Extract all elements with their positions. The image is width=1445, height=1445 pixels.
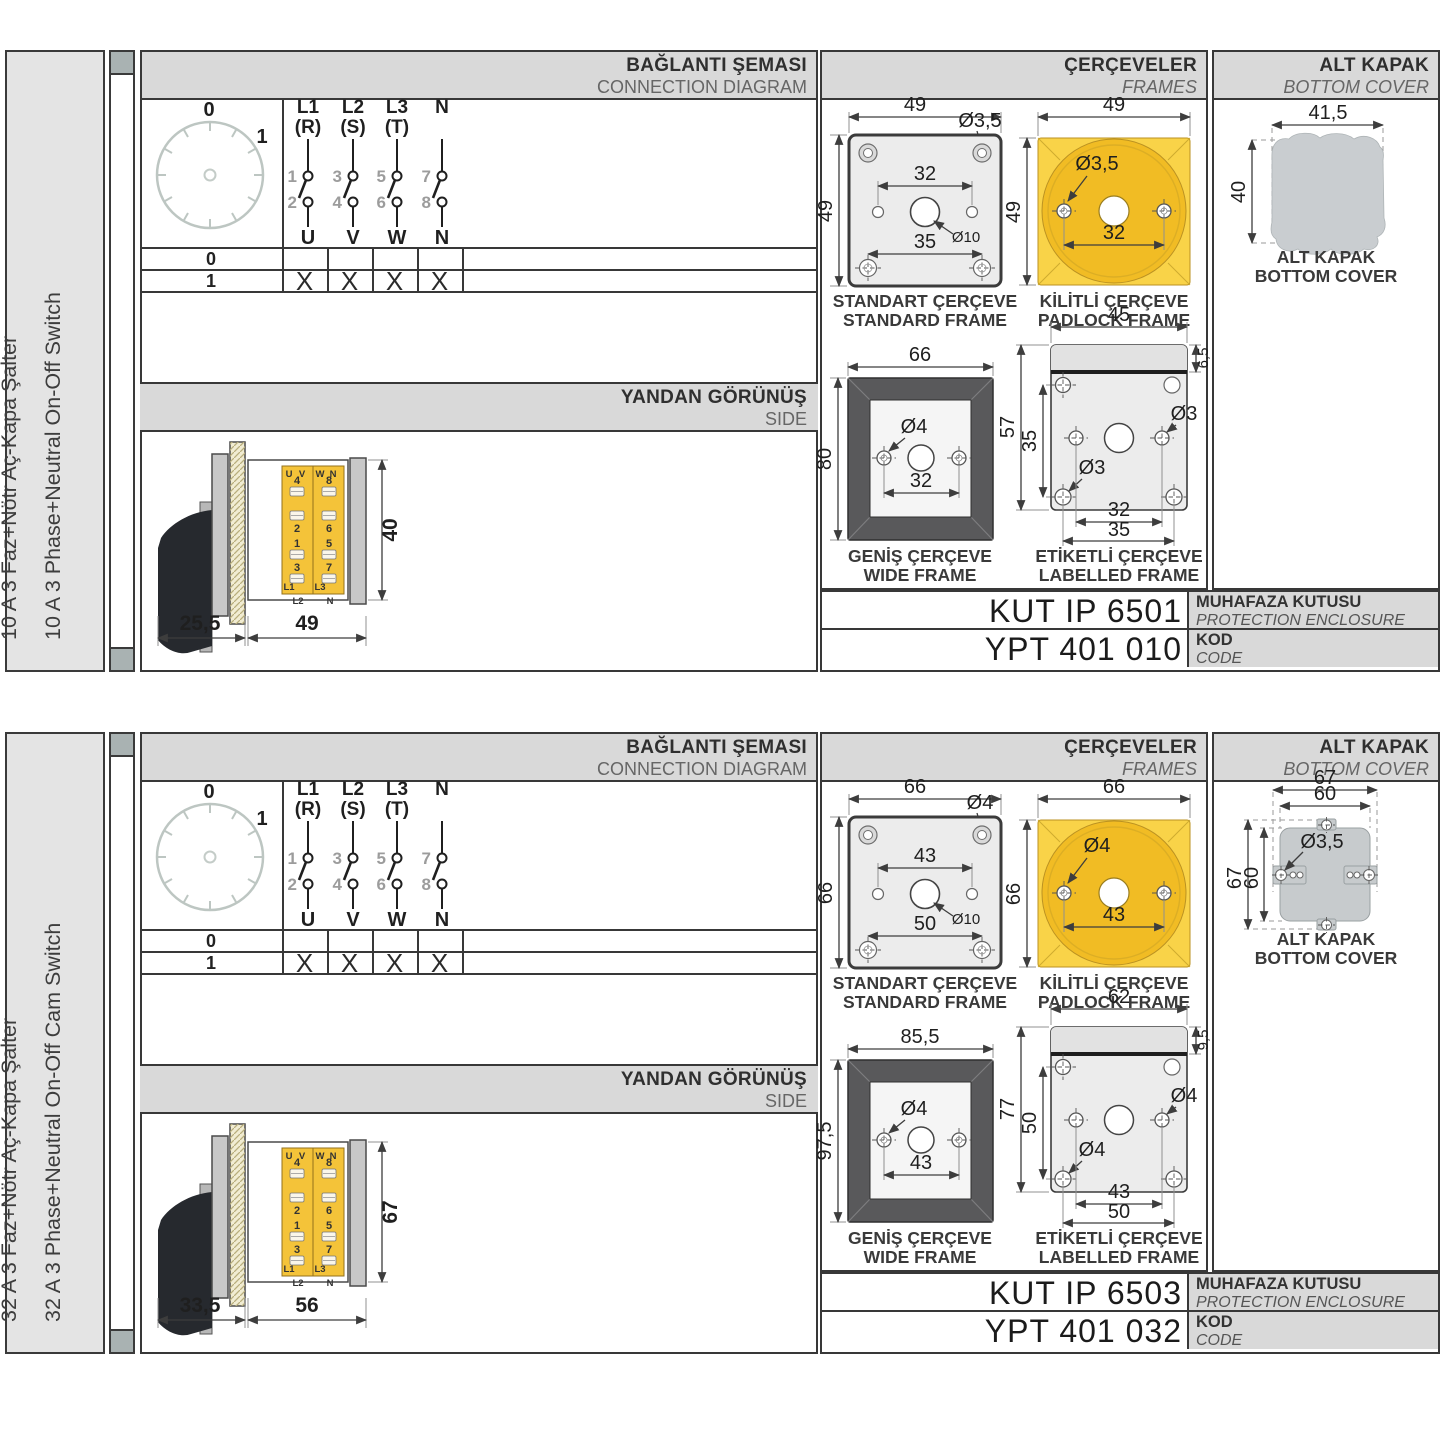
table-line [140,291,818,293]
frames-header: ÇERÇEVELER FRAMES [822,734,1206,782]
connection-diagram-column: BAĞLANTI ŞEMASI CONNECTION DIAGRAM [140,732,818,1354]
switch-table-row-label: 1 [140,953,282,973]
switch-table-cell: X [282,270,327,292]
product-label-turkish: 10 A 3 Faz+Nötr Aç-Kapa Şalter [0,336,21,640]
frames-header: ÇERÇEVELER FRAMES [822,52,1206,100]
header-title-en: FRAMES [831,77,1197,97]
header-title-tr: YANDAN GÖRÜNÜŞ [151,1069,807,1091]
switch-table-row-label: 0 [140,249,282,269]
code-value: YPT 401 010 [822,631,1182,668]
code-label-cell: KOD CODE [1187,1312,1438,1349]
switch-table-cell: X [372,952,417,974]
header-title-en: BOTTOM COVER [1223,759,1429,779]
bottom-cover-column: ALT KAPAK BOTTOM COVER [1212,50,1440,590]
header-title-tr: ÇERÇEVELER [831,737,1197,759]
connection-diagram-header: BAĞLANTI ŞEMASI CONNECTION DIAGRAM [142,734,816,782]
header-title-en: SIDE [151,409,807,429]
code-value: YPT 401 032 [822,1313,1182,1350]
enclosure-code-value: KUT IP 6501 [822,593,1182,630]
enclosure-label-cell: MUHAFAZA KUTUSU PROTECTION ENCLOSURE [1187,1274,1438,1310]
connection-diagram-column: BAĞLANTI ŞEMASI CONNECTION DIAGRAM [140,50,818,672]
header-title-tr: ALT KAPAK [1223,737,1429,759]
code-row: YPT 401 032 KOD CODE [822,1312,1438,1349]
header-title-en: BOTTOM COVER [1223,77,1429,97]
bottom-cover-header: ALT KAPAK BOTTOM COVER [1214,52,1438,100]
enclosure-code-row: KUT IP 6503 MUHAFAZA KUTUSU PROTECTION E… [822,1274,1438,1312]
frames-column: ÇERÇEVELER FRAMES [820,50,1208,590]
codes-table: KUT IP 6501 MUHAFAZA KUTUSU PROTECTION E… [820,590,1440,672]
product-label-english: 32 A 3 Phase+Neutral On-Off Cam Switch [41,923,65,1322]
spine-cap-bottom [111,1329,133,1352]
header-title-en: FRAMES [831,759,1197,779]
product-section: 32 A 3 Faz+Nötr Aç-Kapa Şalter 32 A 3 Ph… [0,732,1445,1354]
table-line [462,247,464,293]
switch-table-cell: X [327,270,372,292]
switch-table-cell: X [327,952,372,974]
product-label-turkish: 32 A 3 Faz+Nötr Aç-Kapa Şalter [0,1018,21,1322]
connection-diagram-header: BAĞLANTI ŞEMASI CONNECTION DIAGRAM [142,52,816,100]
switch-table-cell: X [417,270,462,292]
header-title-tr: BAĞLANTI ŞEMASI [151,737,807,759]
switch-table-row-label: 1 [140,271,282,291]
switch-table-cell: X [282,952,327,974]
switch-table-cell: X [372,270,417,292]
dial-divider-line [282,780,284,931]
bottom-cover-column: ALT KAPAK BOTTOM COVER [1212,732,1440,1272]
enclosure-code-row: KUT IP 6501 MUHAFAZA KUTUSU PROTECTION E… [822,592,1438,630]
bottom-cover-header: ALT KAPAK BOTTOM COVER [1214,734,1438,782]
enclosure-code-value: KUT IP 6503 [822,1275,1182,1312]
switch-table-row-label: 0 [140,931,282,951]
header-title-tr: ÇERÇEVELER [831,55,1197,77]
spine-cap-top [111,734,133,757]
table-line [462,929,464,975]
table-line [140,973,818,975]
code-row: YPT 401 010 KOD CODE [822,630,1438,667]
header-title-en: CONNECTION DIAGRAM [151,77,807,97]
dial-divider-line [282,98,284,249]
header-title-en: CONNECTION DIAGRAM [151,759,807,779]
product-label-box: 10 A 3 Faz+Nötr Aç-Kapa Şalter 10 A 3 Ph… [5,50,105,672]
header-title-tr: BAĞLANTI ŞEMASI [151,55,807,77]
product-label-english: 10 A 3 Phase+Neutral On-Off Switch [41,292,65,640]
switch-table-cell: X [417,952,462,974]
enclosure-label-cell: MUHAFAZA KUTUSU PROTECTION ENCLOSURE [1187,592,1438,628]
header-title-tr: YANDAN GÖRÜNÜŞ [151,387,807,409]
spine-cap-bottom [111,647,133,670]
header-title-en: SIDE [151,1091,807,1111]
frames-column: ÇERÇEVELER FRAMES [820,732,1208,1272]
spine-column [109,50,135,672]
side-view-header: YANDAN GÖRÜNÜŞ SIDE [140,382,818,432]
product-section: 10 A 3 Faz+Nötr Aç-Kapa Şalter 10 A 3 Ph… [0,50,1445,672]
product-label-box: 32 A 3 Faz+Nötr Aç-Kapa Şalter 32 A 3 Ph… [5,732,105,1354]
side-view-header: YANDAN GÖRÜNÜŞ SIDE [140,1064,818,1114]
codes-table: KUT IP 6503 MUHAFAZA KUTUSU PROTECTION E… [820,1272,1440,1354]
spine-column [109,732,135,1354]
code-label-cell: KOD CODE [1187,630,1438,667]
spine-cap-top [111,52,133,75]
header-title-tr: ALT KAPAK [1223,55,1429,77]
